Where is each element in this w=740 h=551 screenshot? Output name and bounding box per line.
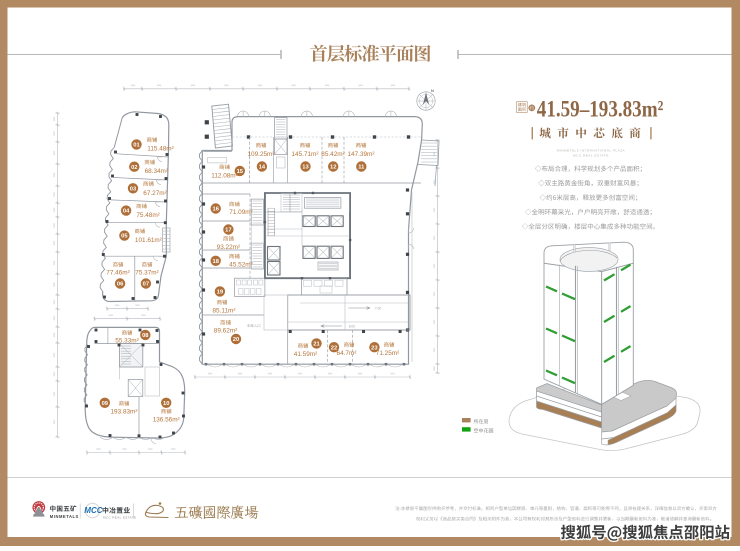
- svg-text:193.83m²: 193.83m²: [111, 409, 138, 416]
- svg-text:13: 13: [302, 165, 309, 171]
- svg-text:41.59m²: 41.59m²: [294, 351, 317, 358]
- svg-text:45.52m²: 45.52m²: [229, 261, 252, 268]
- svg-text:03: 03: [130, 186, 137, 192]
- svg-text:10: 10: [163, 401, 169, 407]
- svg-text:64.7m²: 64.7m²: [337, 350, 357, 357]
- svg-text:14: 14: [259, 165, 266, 171]
- svg-text:7.00: 7.00: [375, 307, 381, 311]
- svg-text:01: 01: [133, 143, 140, 149]
- svg-text:15: 15: [237, 169, 244, 175]
- svg-text:08: 08: [142, 333, 149, 339]
- svg-text:75.37m²: 75.37m²: [135, 269, 158, 276]
- svg-text:85.11m²: 85.11m²: [213, 307, 236, 314]
- svg-text:8.00: 8.00: [349, 325, 355, 329]
- svg-text:67.27m²: 67.27m²: [143, 190, 166, 197]
- svg-text:75.48m²: 75.48m²: [136, 212, 159, 219]
- svg-text:77.46m²: 77.46m²: [106, 269, 129, 276]
- svg-text:02: 02: [131, 165, 137, 171]
- svg-text:68.34m²: 68.34m²: [145, 168, 168, 175]
- svg-text:112.08m²: 112.08m²: [211, 172, 238, 179]
- svg-text:09: 09: [102, 401, 109, 407]
- svg-text:41.59–193.83m²: 41.59–193.83m²: [537, 96, 664, 122]
- svg-text:MINMETALS: MINMETALS: [50, 514, 79, 519]
- svg-text:11: 11: [358, 165, 365, 171]
- svg-text:115.48m²: 115.48m²: [147, 146, 174, 153]
- svg-text:20: 20: [233, 337, 239, 343]
- svg-text:145.71m²: 145.71m²: [292, 151, 319, 158]
- svg-text:101.61m²: 101.61m²: [135, 237, 162, 244]
- svg-text:MCC REAL ESTATE: MCC REAL ESTATE: [573, 154, 609, 158]
- svg-text:12: 12: [330, 165, 336, 171]
- svg-text:MCC: MCC: [84, 506, 102, 515]
- svg-text:71.09m²: 71.09m²: [229, 209, 252, 216]
- svg-text:136.56m²: 136.56m²: [153, 416, 180, 423]
- svg-text:21: 21: [313, 342, 320, 348]
- svg-text:19: 19: [217, 290, 224, 296]
- svg-text:MCC REAL ESTATE: MCC REAL ESTATE: [103, 515, 136, 519]
- svg-text:147.39m²: 147.39m²: [348, 151, 375, 158]
- svg-text:07: 07: [143, 282, 149, 288]
- svg-text:05: 05: [121, 234, 128, 240]
- svg-text:MINMETALS INTERNATIONAL PLAZA: MINMETALS INTERNATIONAL PLAZA: [557, 149, 626, 153]
- svg-text:16: 16: [212, 207, 219, 213]
- svg-text:18: 18: [212, 259, 219, 265]
- svg-text:04: 04: [123, 209, 130, 215]
- svg-text:06: 06: [117, 282, 124, 288]
- svg-text:109.25m²: 109.25m²: [248, 151, 275, 158]
- svg-text:85.42m²: 85.42m²: [321, 151, 344, 158]
- svg-text:17: 17: [225, 228, 231, 234]
- svg-text:71.25m²: 71.25m²: [376, 350, 399, 357]
- svg-text:89.62m²: 89.62m²: [214, 328, 237, 335]
- svg-text:93.22m²: 93.22m²: [217, 244, 240, 251]
- svg-text:N: N: [431, 88, 434, 93]
